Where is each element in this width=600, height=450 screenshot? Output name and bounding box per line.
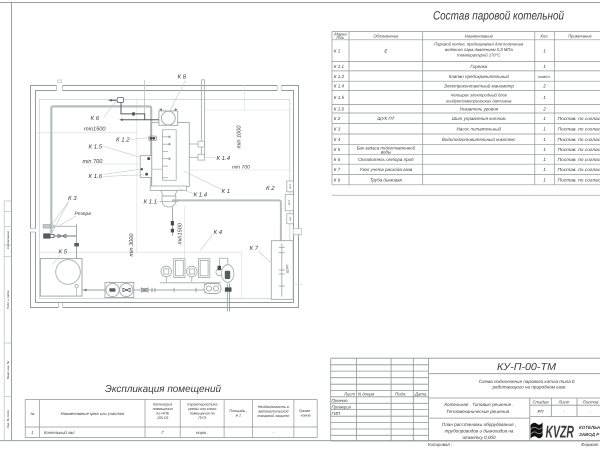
- svg-text:Лист: Лист: [343, 392, 355, 397]
- svg-text:Узел учета расхода газа: Узел учета расхода газа: [360, 167, 413, 172]
- svg-text:Труба дымовая: Труба дымовая: [370, 178, 403, 183]
- svg-text:ЩСУ: ЩСУ: [288, 199, 291, 205]
- svg-text:К 5: К 5: [334, 147, 341, 152]
- svg-text:водяного пара давлением 0,8 МП: водяного пара давлением 0,8 МПа: [445, 47, 513, 52]
- svg-text:температурой 170°С: температурой 170°С: [457, 52, 501, 57]
- svg-text:К 1.4: К 1.4: [217, 155, 231, 162]
- svg-text:К 3: К 3: [68, 195, 77, 202]
- svg-text:Электроконтактный манометр: Электроконтактный манометр: [444, 84, 515, 89]
- svg-text:Котельный зал: Котельный зал: [44, 430, 75, 435]
- svg-text:К 1.6: К 1.6: [89, 173, 103, 180]
- svg-text:ПУЭ: ПУЭ: [198, 416, 206, 420]
- svg-text:min 700: min 700: [232, 165, 250, 171]
- svg-text:К 1.6: К 1.6: [334, 107, 345, 112]
- svg-text:К 1.2: К 1.2: [116, 137, 130, 144]
- svg-text:Котельная . Типовые решения .: Котельная . Типовые решения .: [444, 402, 513, 407]
- svg-text:Четырех электродный блок: Четырех электродный блок: [451, 92, 508, 97]
- svg-text:среды или класс: среды или класс: [188, 407, 217, 411]
- svg-text:К 3: К 3: [334, 127, 341, 132]
- svg-text:ЩУК: ЩУК: [289, 183, 292, 189]
- svg-text:Указатель уровня: Указатель уровня: [459, 107, 498, 112]
- svg-text:Инв. № подл.: Инв. № подл.: [6, 410, 10, 429]
- svg-text:Экспликация помещений: Экспликация помещений: [105, 384, 221, 395]
- svg-text:К 4: К 4: [214, 229, 223, 236]
- svg-text:Горелка: Горелка: [470, 64, 487, 69]
- svg-text:К 7: К 7: [334, 167, 341, 172]
- svg-text:Необходимость в: Необходимость в: [258, 405, 289, 409]
- svg-text:К 1: К 1: [334, 48, 341, 53]
- svg-text:К 6: К 6: [91, 115, 100, 122]
- svg-text:К 1.1: К 1.1: [144, 199, 158, 206]
- svg-text:Постав. по соглас.: Постав. по соглас.: [558, 116, 600, 121]
- svg-text:ЩО: ЩО: [289, 217, 292, 221]
- svg-text:Примечание: Примечание: [568, 33, 592, 38]
- svg-text:м 2: м 2: [236, 414, 242, 418]
- svg-text:КОТЕЛЬНЫ: КОТЕЛЬНЫ: [579, 425, 600, 430]
- svg-text:пожарной защите: пожарной защите: [257, 414, 289, 418]
- svg-text:Постав. по соглас.: Постав. по соглас.: [558, 167, 600, 172]
- svg-text:План расстановки оборудования: План расстановки оборудования ,: [442, 422, 516, 427]
- svg-text:Подп. и дата: Подп. и дата: [6, 290, 10, 309]
- svg-text:min 1000: min 1000: [236, 125, 243, 149]
- svg-text:кондуктометрических датчиков: кондуктометрических датчиков: [446, 98, 512, 103]
- svg-text:К 7: К 7: [250, 245, 259, 252]
- svg-text:Охладитель отбора проб: Охладитель отбора проб: [358, 157, 414, 162]
- svg-text:К 6: К 6: [334, 157, 341, 162]
- svg-text:№: №: [30, 412, 34, 416]
- svg-text:Шит управления котлом: Шит управления котлом: [452, 116, 506, 121]
- svg-text:К 4: К 4: [334, 137, 341, 142]
- svg-text:Постав. по соглас.: Постав. по соглас.: [558, 127, 600, 132]
- svg-text:автоматической: автоматической: [258, 409, 288, 413]
- svg-text:Характеристика: Характеристика: [186, 403, 217, 407]
- svg-text:К 1.5: К 1.5: [334, 95, 345, 100]
- svg-text:норм .: норм .: [196, 430, 208, 435]
- svg-text:Согласовано: Согласовано: [6, 231, 10, 250]
- svg-text:Клапан предохранительный: Клапан предохранительный: [449, 74, 510, 79]
- svg-text:К 1.5: К 1.5: [89, 144, 103, 151]
- svg-text:1: 1: [31, 430, 33, 435]
- svg-text:ЗАВОД Р: ЗАВОД Р: [579, 432, 600, 437]
- svg-text:К 8: К 8: [334, 178, 341, 183]
- svg-text:Постав. по соглас.: Постав. по соглас.: [558, 147, 600, 152]
- svg-text:К 1.2: К 1.2: [334, 74, 345, 79]
- svg-text:Паровой котел, предназначен дл: Паровой котел, предназначен для получени…: [434, 42, 524, 47]
- svg-text:105-03: 105-03: [157, 416, 169, 420]
- svg-text:Насос питательный: Насос питательный: [457, 127, 502, 132]
- svg-text:Приме -: Приме -: [299, 409, 313, 413]
- svg-text:ШУРГ: ШУРГ: [286, 264, 290, 273]
- svg-text:Подп.: Подп.: [395, 392, 406, 397]
- svg-text:min1500: min1500: [177, 222, 184, 244]
- svg-text:К 1.1: К 1.1: [334, 64, 345, 69]
- svg-text:Дата: Дата: [414, 392, 427, 397]
- svg-text:К 1: К 1: [222, 188, 231, 195]
- svg-text:Наименование: Наименование: [465, 33, 494, 38]
- svg-text:2: 2: [542, 107, 546, 112]
- svg-text:Стадия: Стадия: [532, 399, 549, 404]
- svg-text:Копировал :: Копировал :: [428, 442, 453, 447]
- svg-text:Постав. по соглас.: Постав. по соглас.: [558, 137, 600, 142]
- svg-text:Кол.: Кол.: [540, 33, 548, 38]
- svg-text:К 1.4: К 1.4: [194, 192, 208, 199]
- svg-text:КУ-П-00-ТМ: КУ-П-00-ТМ: [497, 362, 557, 373]
- svg-text:Взам. инв. №: Взам. инв. №: [6, 360, 10, 379]
- svg-text:min1500: min1500: [84, 126, 106, 133]
- svg-text:Водоподготовительный комплекс: Водоподготовительный комплекс: [442, 137, 517, 142]
- svg-text:Проверил: Проверил: [332, 405, 352, 410]
- svg-text:ЩУК ПТ: ЩУК ПТ: [377, 116, 395, 121]
- svg-text:чание: чание: [301, 414, 311, 418]
- svg-text:Постав. по соглас.: Постав. по соглас.: [558, 157, 600, 162]
- svg-text:по НПБ: по НПБ: [156, 412, 169, 416]
- svg-text:Лист: Лист: [557, 399, 569, 404]
- svg-text:помещения по: помещения по: [190, 412, 215, 416]
- svg-text:К 1.4: К 1.4: [334, 84, 345, 89]
- svg-text:Тепломеханические решения .: Тепломеханические решения .: [446, 409, 512, 414]
- svg-text:Схема подключения парового кот: Схема подключения парового котла типа Е: [479, 379, 576, 384]
- svg-text:отметку 0,000: отметку 0,000: [462, 435, 495, 440]
- svg-text:Обозначение: Обозначение: [373, 33, 399, 38]
- svg-text:Площадь ,: Площадь ,: [229, 409, 247, 413]
- svg-text:Поз.: Поз.: [336, 35, 344, 40]
- svg-text:Листов: Листов: [582, 399, 599, 404]
- svg-text:Наименование цеха или участка: Наименование цеха или участка: [61, 411, 125, 416]
- svg-text:Резерв: Резерв: [75, 211, 92, 217]
- svg-text:Постав. по соглас.: Постав. по соглас.: [558, 178, 600, 183]
- svg-text:компл.: компл.: [538, 74, 550, 79]
- svg-text:min.3000: min.3000: [128, 233, 135, 257]
- svg-text:трубопроводов и дымоходов на: трубопроводов и дымоходов на: [445, 429, 514, 434]
- svg-text:К 2: К 2: [334, 116, 341, 121]
- svg-text:Состав паровой котельной: Состав паровой котельной: [433, 9, 564, 23]
- svg-text:Формат: Формат: [581, 442, 599, 447]
- svg-text:ГИП: ГИП: [332, 411, 341, 416]
- svg-text:К 5: К 5: [59, 249, 68, 256]
- svg-text:воды: воды: [381, 150, 392, 155]
- svg-text:KVZR: KVZR: [546, 422, 575, 441]
- svg-text:Категория: Категория: [153, 403, 172, 407]
- svg-text:работающего на природном газе: работающего на природном газе: [491, 385, 565, 390]
- svg-text:К 2: К 2: [266, 185, 275, 192]
- svg-text:min 700: min 700: [83, 158, 104, 165]
- svg-text:N докум: N докум: [358, 392, 374, 397]
- svg-text:Проект.: Проект.: [332, 398, 349, 403]
- svg-text:РП: РП: [538, 409, 545, 414]
- svg-text:помещения: помещения: [153, 407, 173, 411]
- svg-text:К 8: К 8: [178, 74, 187, 81]
- svg-text:2: 2: [542, 84, 546, 89]
